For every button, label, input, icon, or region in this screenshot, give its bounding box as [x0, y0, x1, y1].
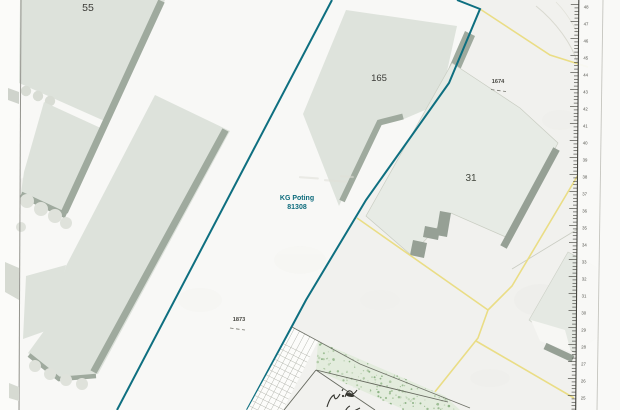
svg-text:1873: 1873 [233, 317, 245, 323]
svg-text:43: 43 [583, 89, 588, 94]
svg-text:46: 46 [584, 38, 589, 43]
svg-text:55: 55 [82, 2, 94, 14]
svg-text:28: 28 [581, 344, 586, 349]
svg-text:30: 30 [581, 310, 586, 315]
svg-text:37: 37 [582, 191, 587, 196]
svg-text:38: 38 [583, 174, 588, 179]
svg-text:41: 41 [583, 123, 588, 128]
svg-text:48: 48 [584, 4, 589, 9]
svg-text:45: 45 [583, 55, 588, 60]
svg-text:31: 31 [582, 293, 587, 298]
svg-text:39: 39 [583, 157, 588, 162]
svg-text:32: 32 [582, 276, 587, 281]
svg-text:31: 31 [465, 173, 477, 184]
svg-text:33: 33 [582, 259, 587, 264]
svg-text:1674: 1674 [492, 79, 505, 85]
svg-text:29: 29 [581, 327, 586, 332]
svg-text:KG Poting: KG Poting [280, 195, 314, 202]
svg-text:26: 26 [581, 378, 586, 383]
svg-text:36: 36 [582, 208, 587, 213]
svg-text:44: 44 [583, 72, 588, 77]
svg-text:25: 25 [581, 395, 586, 400]
svg-text:40: 40 [583, 140, 588, 145]
svg-text:81308: 81308 [287, 204, 307, 211]
svg-text:35: 35 [582, 225, 587, 230]
svg-text:42: 42 [583, 106, 588, 111]
svg-text:47: 47 [584, 21, 589, 26]
svg-text:34: 34 [582, 242, 587, 247]
svg-text:27: 27 [581, 361, 586, 366]
svg-text:165: 165 [371, 73, 387, 84]
